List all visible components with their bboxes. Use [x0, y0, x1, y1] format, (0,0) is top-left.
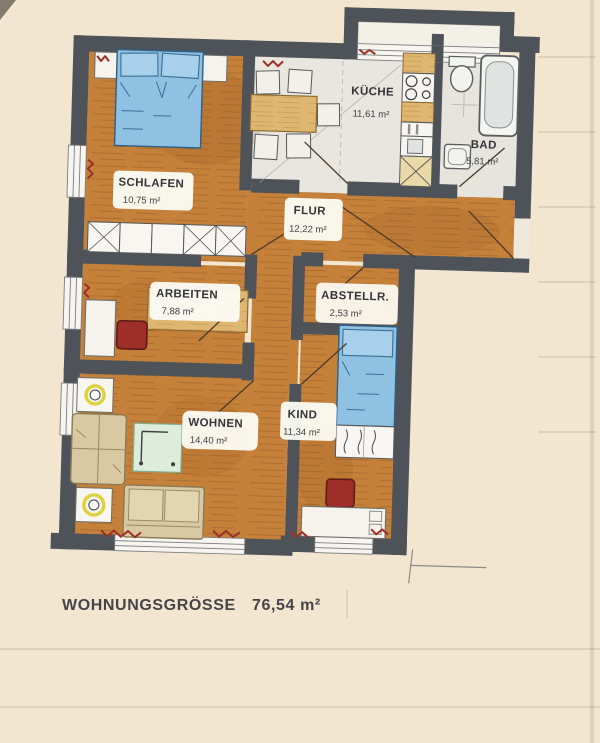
double-bed — [115, 49, 204, 148]
stove — [402, 73, 435, 103]
side-table-lamp-top — [77, 377, 114, 412]
svg-text:10,75 m²: 10,75 m² — [123, 195, 161, 207]
svg-text:ARBEITEN: ARBEITEN — [156, 288, 218, 302]
room-label-kind: KIND 11,34 m² — [280, 401, 337, 441]
svg-text:2,53 m²: 2,53 m² — [329, 308, 362, 320]
room-label-arbeiten: ARBEITEN 7,88 m² — [149, 282, 240, 323]
dining-table — [250, 94, 317, 132]
window-kind-bottom — [315, 537, 373, 555]
tall-cabinet — [399, 156, 432, 187]
counter-mid — [401, 102, 434, 123]
room-label-wohnen: WOHNEN 14,40 m² — [182, 411, 259, 451]
photographed-floor-plan: SCHLAFEN 10,75 m² KÜCHE 11,61 m² BAD 5,8… — [0, 0, 600, 743]
entrance-opening — [513, 218, 530, 258]
utensil-rack — [401, 122, 433, 137]
svg-text:5,81 m²: 5,81 m² — [466, 156, 499, 168]
window-arbeiten-left — [63, 277, 83, 330]
wardrobe-row — [87, 222, 246, 257]
room-label-flur: FLUR 12,22 m² — [284, 198, 343, 242]
svg-text:SCHLAFEN: SCHLAFEN — [118, 177, 184, 191]
svg-text:WOHNEN: WOHNEN — [188, 417, 243, 431]
svg-text:7,88 m²: 7,88 m² — [161, 306, 194, 318]
counter-top — [403, 53, 436, 74]
glass-coffee-table — [133, 423, 182, 472]
bathtub — [479, 55, 519, 136]
kind-office-chair — [326, 479, 355, 508]
floor-plan: SCHLAFEN 10,75 m² KÜCHE 11,61 m² BAD 5,8… — [0, 0, 600, 743]
footer-value: 76,54 m² — [252, 597, 321, 614]
svg-text:KÜCHE: KÜCHE — [351, 84, 394, 98]
single-bed — [336, 325, 397, 427]
svg-text:KIND: KIND — [287, 409, 317, 422]
svg-text:12,22 m²: 12,22 m² — [289, 224, 327, 236]
room-label-abstellraum: ABSTELLR. 2,53 m² — [315, 282, 398, 324]
kitchen-sink — [400, 136, 433, 157]
svg-text:11,61 m²: 11,61 m² — [352, 108, 389, 120]
room-label-schlafen: SCHLAFEN 10,75 m² — [113, 170, 194, 210]
cabinet — [84, 300, 116, 357]
window-schlafen-left — [67, 145, 87, 198]
svg-text:11,34 m²: 11,34 m² — [283, 427, 320, 439]
kind-wardrobe — [335, 425, 394, 459]
svg-text:ABSTELLR.: ABSTELLR. — [321, 290, 389, 304]
kitchen-counter — [399, 53, 435, 187]
office-chair — [116, 321, 147, 350]
footer-label: WOHNUNGSGRÖSSE — [62, 595, 236, 614]
svg-text:14,40 m²: 14,40 m² — [190, 435, 228, 447]
svg-text:FLUR: FLUR — [293, 205, 326, 218]
armchair — [70, 413, 126, 485]
kind-desk — [301, 506, 386, 538]
side-table-lamp-bottom — [75, 487, 112, 522]
svg-text:BAD: BAD — [470, 139, 496, 152]
nightstand-right — [202, 55, 227, 82]
sofa — [123, 485, 205, 539]
